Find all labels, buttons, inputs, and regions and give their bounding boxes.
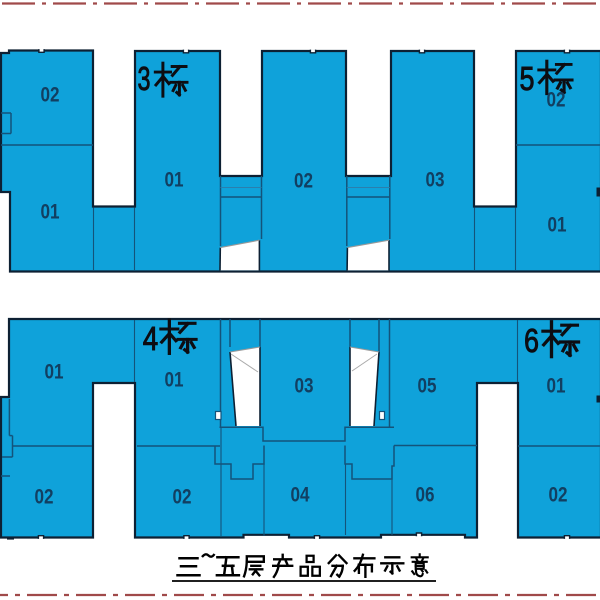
svg-text:5: 5 — [520, 60, 535, 97]
svg-text:01: 01 — [45, 359, 64, 383]
svg-text:05: 05 — [418, 373, 437, 397]
svg-text:3: 3 — [138, 60, 151, 97]
svg-text:4: 4 — [143, 320, 159, 357]
svg-text:01: 01 — [547, 373, 566, 397]
svg-text:02: 02 — [294, 168, 313, 192]
svg-text:01: 01 — [41, 199, 60, 223]
svg-text:02: 02 — [547, 87, 566, 111]
svg-text:02: 02 — [549, 482, 568, 506]
svg-text:01: 01 — [165, 367, 184, 391]
svg-text:06: 06 — [416, 482, 435, 506]
svg-text:02: 02 — [35, 484, 54, 508]
svg-text:04: 04 — [291, 482, 310, 506]
svg-text:02: 02 — [41, 82, 60, 106]
svg-text:02: 02 — [173, 484, 192, 508]
svg-text:01: 01 — [548, 212, 567, 236]
svg-text:03: 03 — [295, 373, 314, 397]
svg-text:03: 03 — [426, 167, 445, 191]
svg-text:01: 01 — [165, 167, 184, 191]
svg-text:6: 6 — [524, 322, 539, 359]
